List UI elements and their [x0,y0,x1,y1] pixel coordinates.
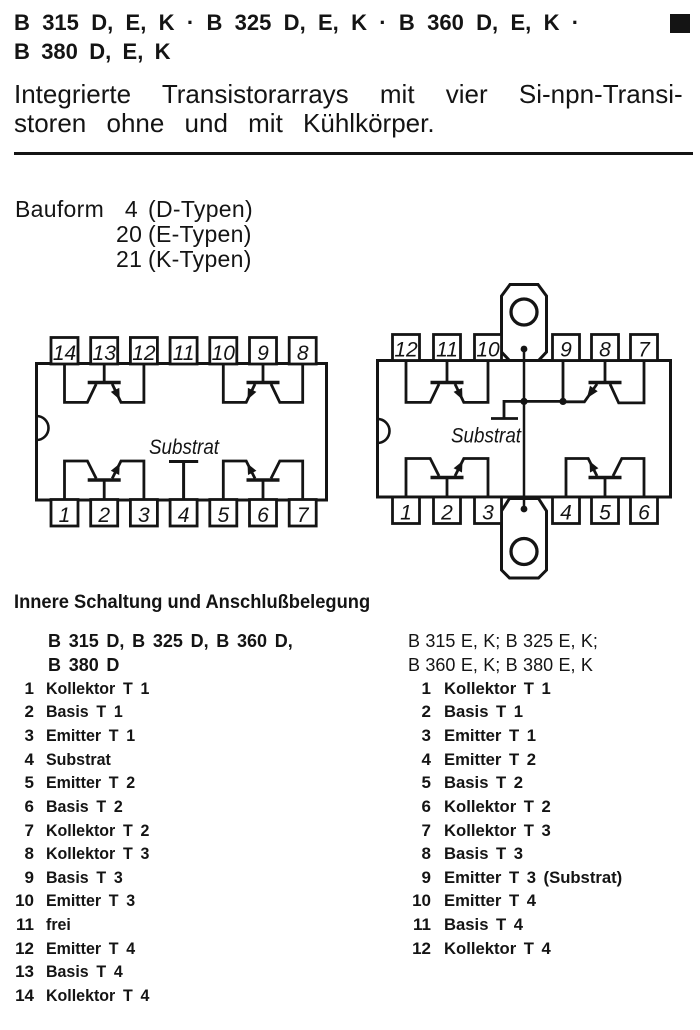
svg-text:5: 5 [599,502,611,525]
svg-text:12: 12 [132,342,156,365]
svg-text:Substrat: Substrat [149,436,220,459]
svg-text:6: 6 [638,502,650,525]
svg-text:7: 7 [638,339,651,362]
svg-text:14: 14 [53,342,76,365]
svg-text:10: 10 [476,339,500,362]
svg-text:12: 12 [394,339,418,362]
svg-text:8: 8 [297,342,309,365]
svg-text:Substrat: Substrat [451,425,522,448]
svg-text:2: 2 [97,504,110,527]
svg-text:10: 10 [212,342,236,365]
svg-text:1: 1 [400,502,412,525]
svg-text:1: 1 [59,504,71,527]
svg-text:4: 4 [560,502,572,525]
svg-text:2: 2 [440,502,453,525]
svg-text:9: 9 [560,339,572,362]
svg-text:11: 11 [173,342,195,365]
svg-text:8: 8 [599,339,611,362]
svg-text:13: 13 [93,342,117,365]
svg-text:4: 4 [178,504,190,527]
svg-text:6: 6 [257,504,269,527]
svg-text:9: 9 [257,342,269,365]
svg-text:11: 11 [436,339,458,362]
svg-text:3: 3 [482,502,494,525]
svg-text:3: 3 [138,504,150,527]
svg-text:7: 7 [297,504,310,527]
svg-text:5: 5 [217,504,229,527]
